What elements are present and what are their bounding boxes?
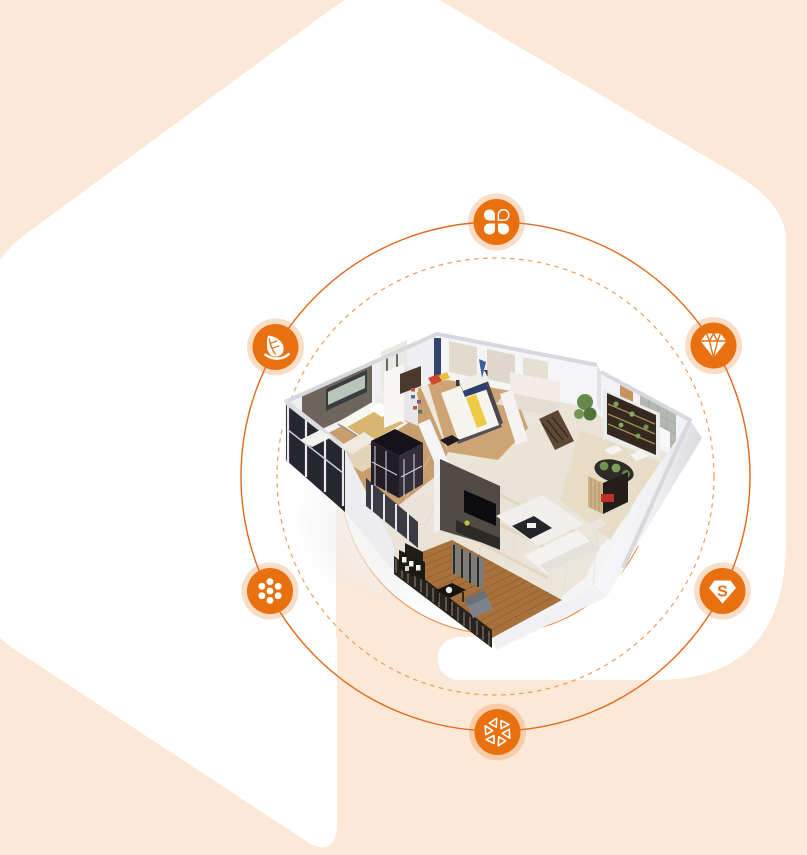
svg-text:S: S bbox=[717, 584, 728, 601]
